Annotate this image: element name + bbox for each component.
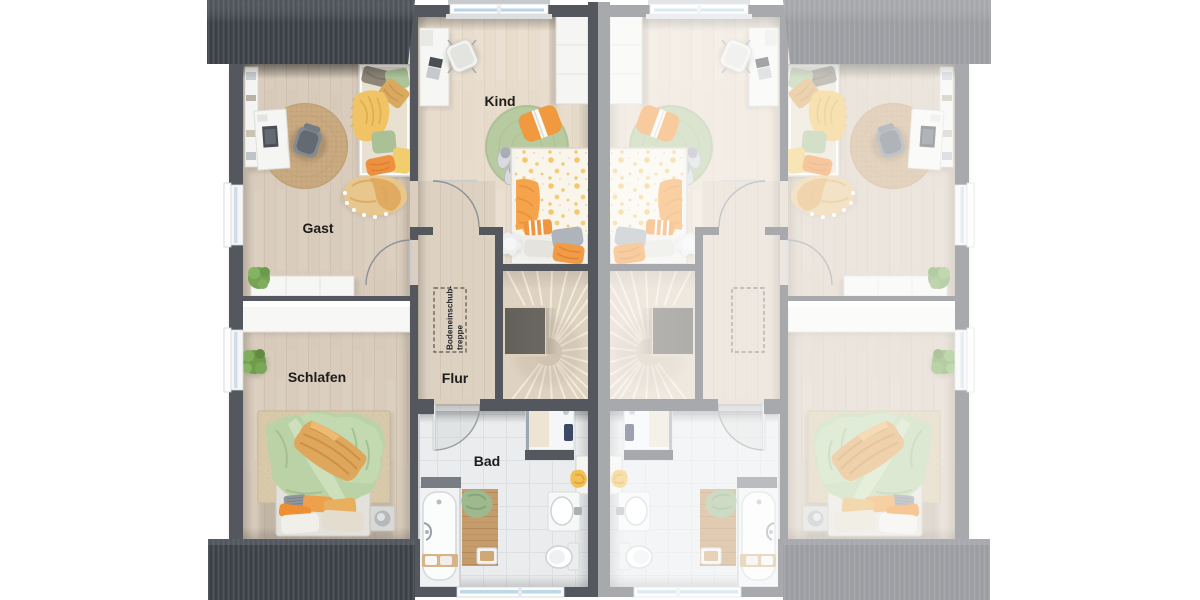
svg-text:Schlafen: Schlafen [288,369,346,385]
svg-text:Gast: Gast [302,220,333,236]
svg-text:Bodeneinschub-: Bodeneinschub- [446,286,455,350]
svg-text:Kind: Kind [484,93,515,109]
svg-text:treppe: treppe [456,325,465,350]
svg-text:Flur: Flur [442,370,469,386]
svg-text:Bad: Bad [474,453,500,469]
